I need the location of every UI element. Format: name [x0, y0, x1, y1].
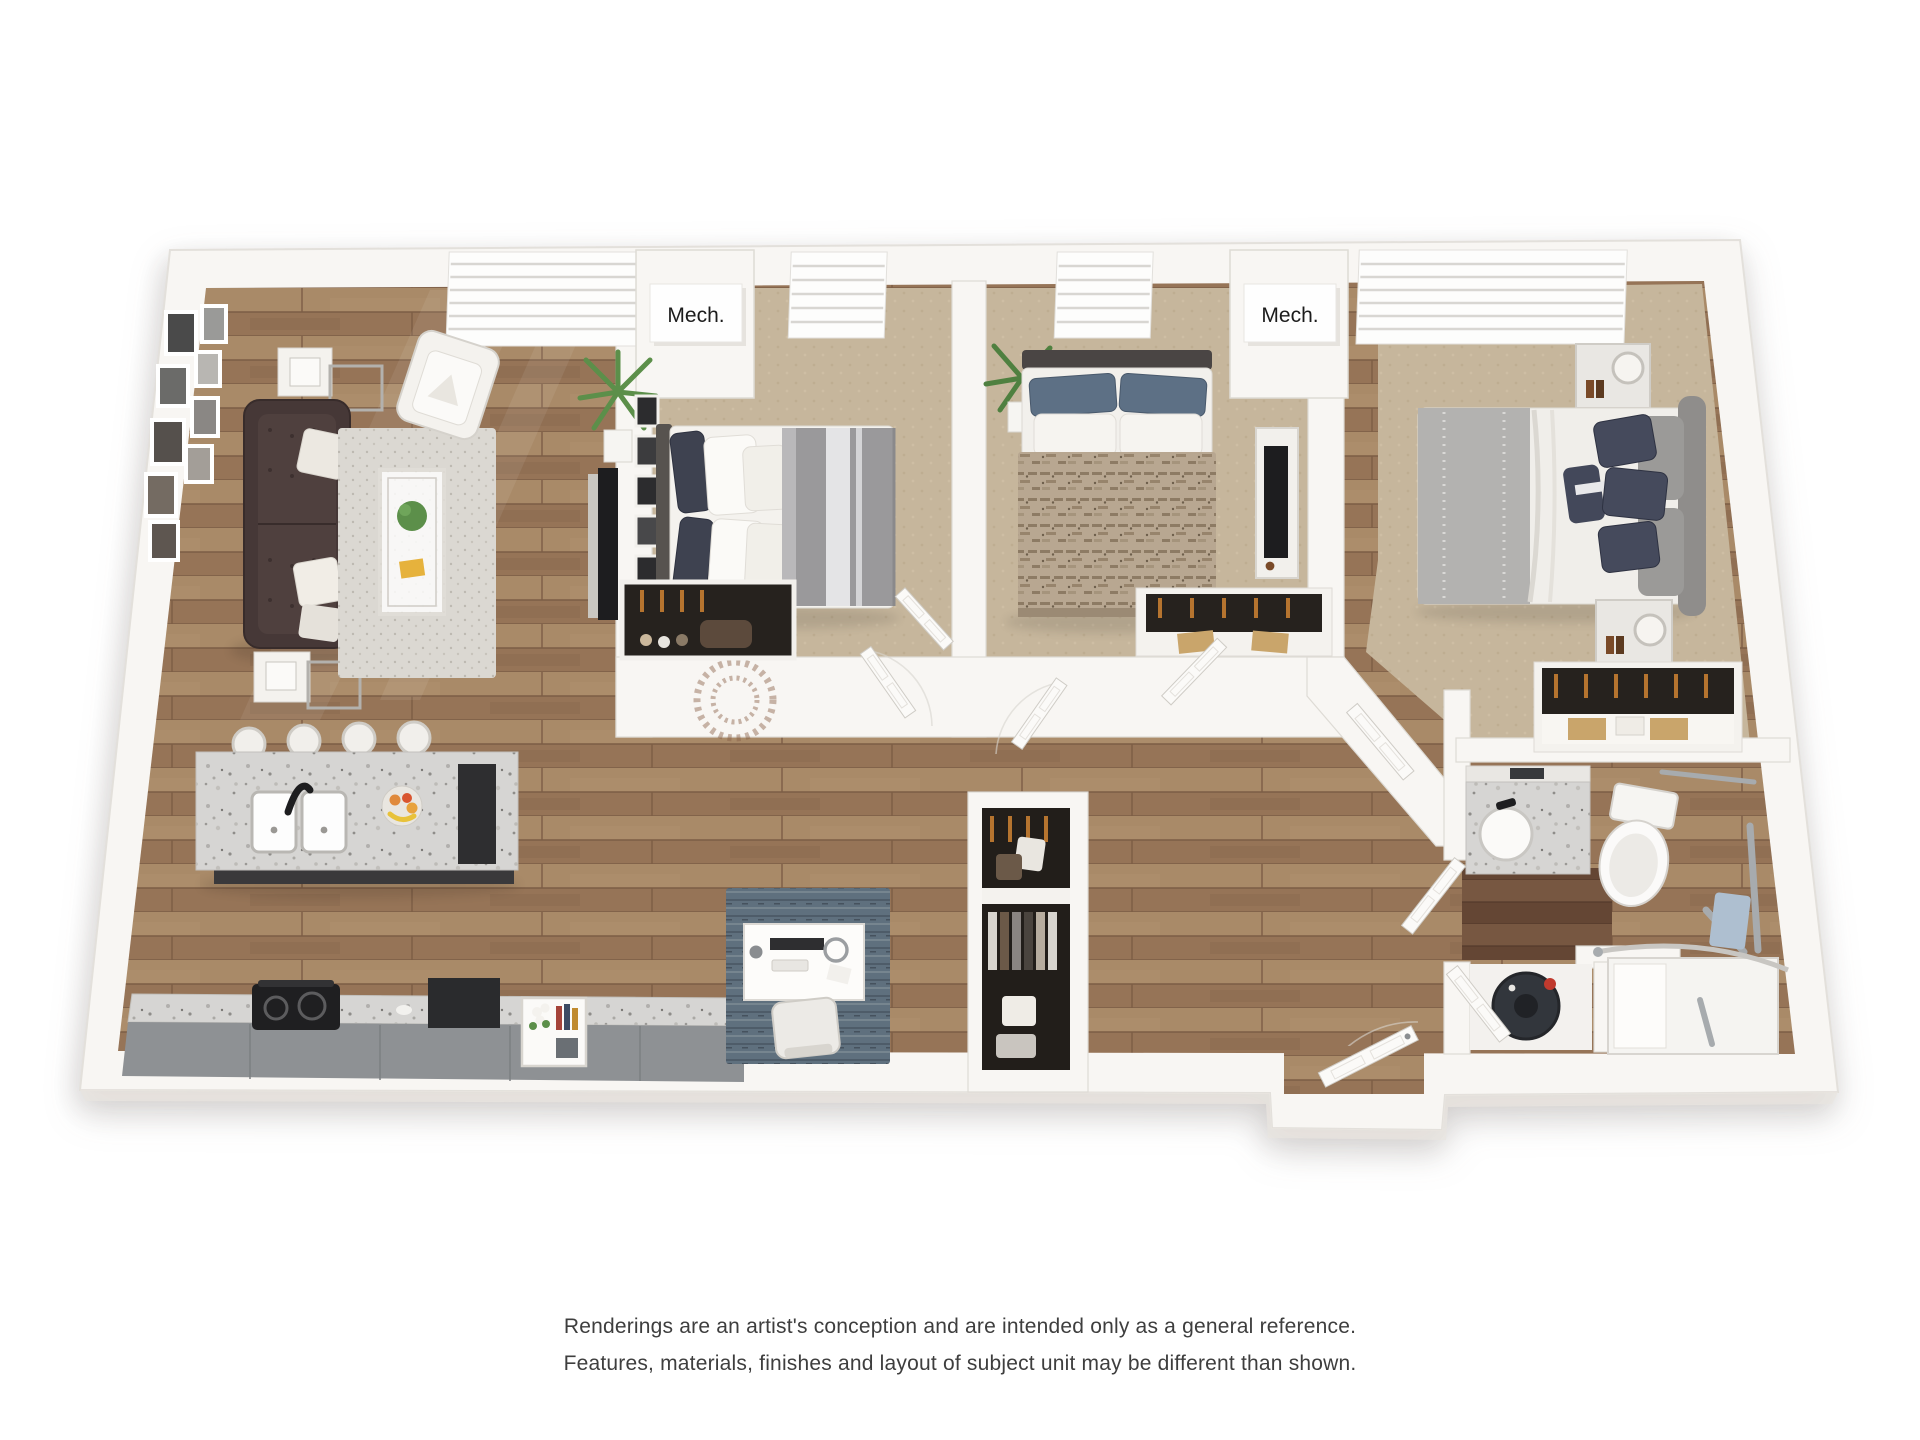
bed-3 [1418, 396, 1706, 616]
bedroom-2-closet [1136, 588, 1332, 656]
tv-console [588, 468, 618, 620]
bookshelf [522, 998, 586, 1066]
bedroom-3-window [1356, 250, 1627, 344]
bed-2 [1018, 350, 1216, 617]
desk-area [726, 888, 890, 1064]
bedroom-2-window [1054, 252, 1153, 338]
floorplan-page: Mech. Mech. [0, 0, 1920, 1440]
monitor [770, 938, 824, 950]
stove [252, 980, 340, 1030]
nightstand-1 [1576, 344, 1650, 408]
counter-appliance [428, 978, 500, 1028]
vessel-sink [1480, 808, 1532, 860]
dishwasher [458, 764, 496, 864]
sofa [244, 400, 350, 648]
bedroom-1-closet [622, 582, 794, 658]
mech-closet-2: Mech. [1230, 250, 1348, 398]
fruit-bowl [382, 786, 422, 826]
hall-closet-upper [982, 808, 1070, 888]
hall-closet-lower [982, 904, 1070, 1070]
desk-mug [750, 946, 763, 959]
living-room-window [446, 252, 661, 346]
vanity [1466, 766, 1590, 874]
bedroom-2-dresser-tv [1256, 428, 1298, 578]
disclaimer-line-2: Features, materials, finishes and layout… [0, 1345, 1920, 1382]
keyboard [772, 960, 808, 971]
coffee-table [380, 470, 444, 614]
lamp-2 [1635, 615, 1665, 645]
desk [744, 924, 864, 1000]
shower-head [1593, 947, 1603, 957]
desk-chair [771, 997, 841, 1059]
hall-closets [982, 808, 1070, 1070]
disclaimer-line-1: Renderings are an artist's conception an… [0, 1308, 1920, 1345]
bedroom-3-closet [1534, 662, 1742, 752]
lamp-1 [1613, 353, 1643, 383]
dish [396, 1005, 412, 1015]
bed-2-duvet [1018, 452, 1216, 610]
bedroom-1-wall-frames [636, 396, 658, 584]
magazine [399, 558, 425, 578]
disclaimer: Renderings are an artist's conception an… [0, 1308, 1920, 1382]
mech-1-label: Mech. [667, 304, 724, 327]
bedroom-1-window [788, 252, 887, 338]
kitchen-island [196, 752, 518, 884]
mech-2-label: Mech. [1261, 304, 1318, 327]
hand-towel [1709, 892, 1751, 950]
mech-closet-1: Mech. [636, 250, 754, 398]
nightstand-2 [1596, 600, 1672, 664]
bed-2-headboard [1022, 350, 1212, 370]
floor-plan-rendering: Mech. Mech. [0, 0, 1920, 1440]
bed-3-blanket [1418, 408, 1530, 604]
walk-in-shower [1593, 946, 1788, 1054]
duffel-bag [700, 620, 752, 648]
